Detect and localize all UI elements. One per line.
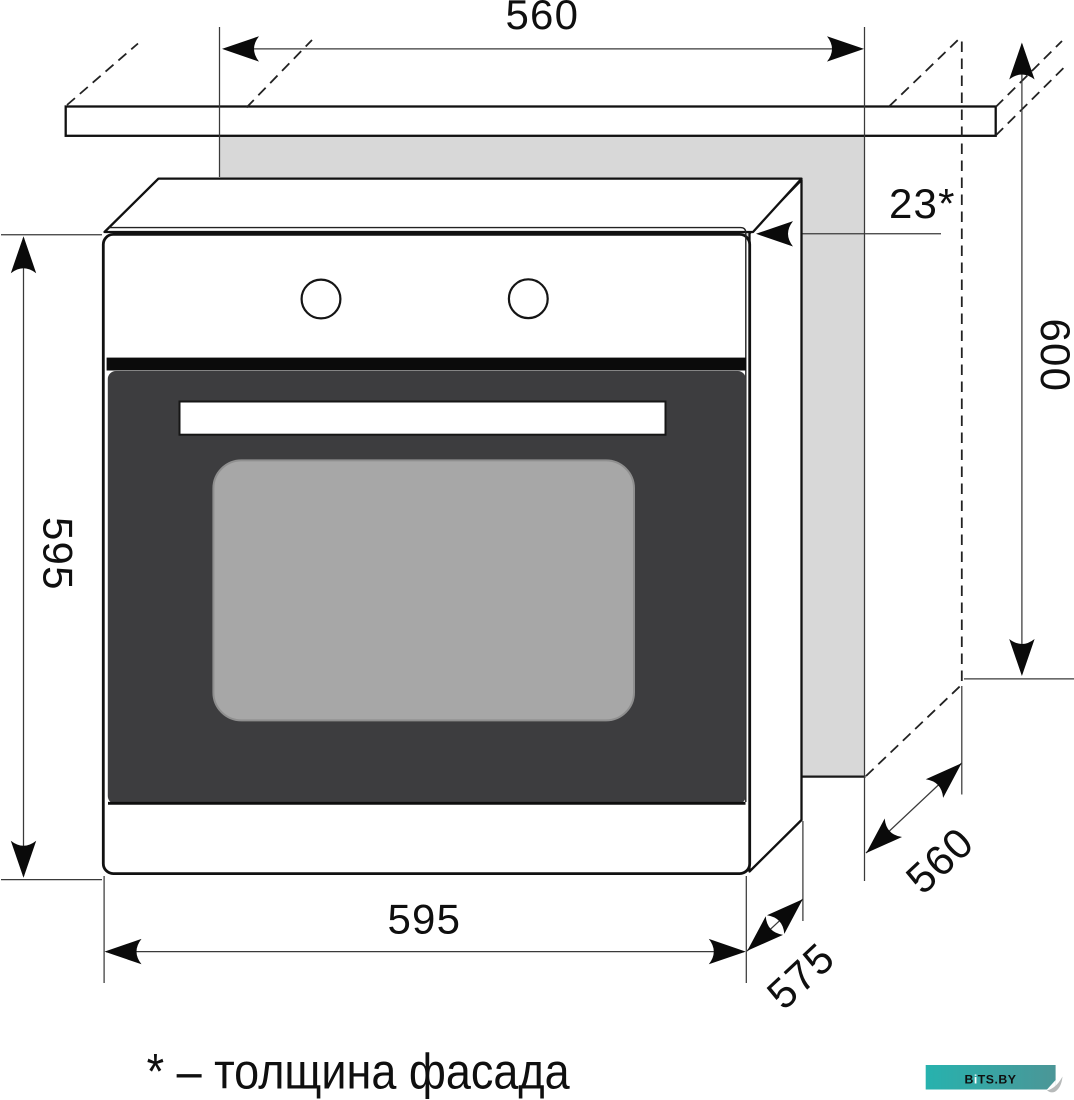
svg-text:560: 560 xyxy=(505,0,579,38)
svg-text:595: 595 xyxy=(35,517,82,591)
svg-text:* – толщина фасада: * – толщина фасада xyxy=(147,1044,570,1100)
svg-text:595: 595 xyxy=(387,896,461,943)
svg-text:600: 600 xyxy=(1032,318,1074,392)
svg-text:23*: 23* xyxy=(889,180,956,227)
svg-text:BiTS.BY: BiTS.BY xyxy=(964,1072,1016,1086)
